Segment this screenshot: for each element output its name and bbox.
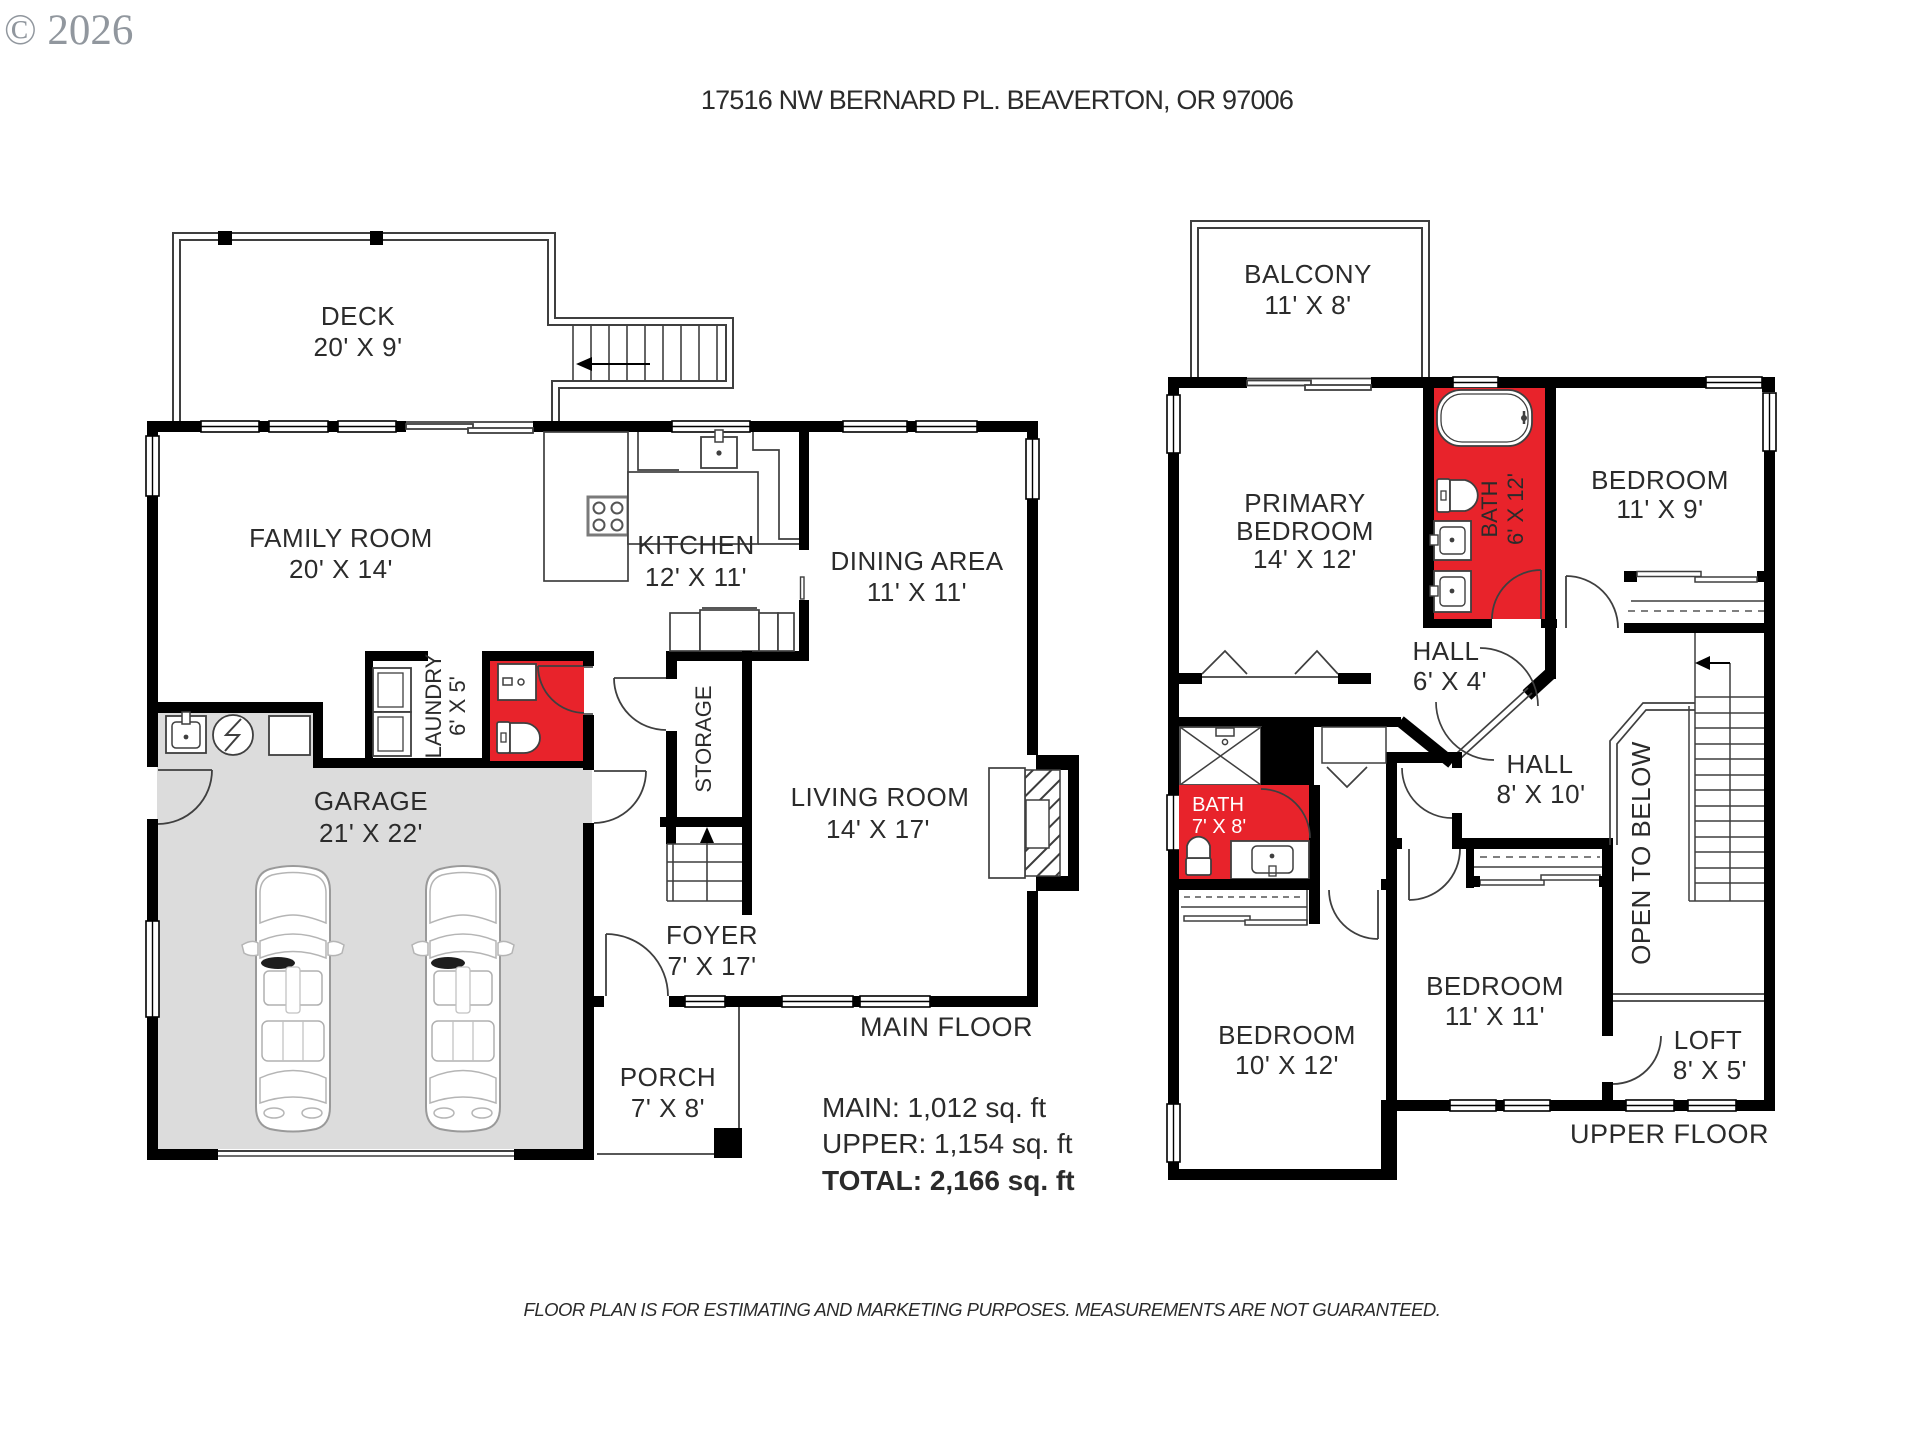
svg-text:FLOOR PLAN IS FOR ESTIMATING A: FLOOR PLAN IS FOR ESTIMATING AND MARKETI… bbox=[524, 1299, 1441, 1320]
svg-text:BATH: BATH bbox=[1192, 794, 1244, 816]
svg-text:HALL: HALL bbox=[1412, 636, 1479, 666]
svg-text:HALL: HALL bbox=[1506, 749, 1573, 779]
svg-text:17516 NW BERNARD PL. BEAVERTON: 17516 NW BERNARD PL. BEAVERTON, OR 97006 bbox=[701, 85, 1293, 115]
svg-text:7' X 17': 7' X 17' bbox=[667, 951, 756, 981]
svg-text:10' X 12': 10' X 12' bbox=[1235, 1050, 1339, 1080]
svg-text:LOFT: LOFT bbox=[1674, 1025, 1742, 1055]
svg-text:PRIMARY: PRIMARY bbox=[1244, 488, 1366, 518]
svg-text:GARAGE: GARAGE bbox=[314, 786, 428, 816]
svg-text:LIVING ROOM: LIVING ROOM bbox=[791, 782, 970, 812]
svg-text:8' X 5': 8' X 5' bbox=[1673, 1055, 1747, 1085]
svg-text:OPEN TO BELOW: OPEN TO BELOW bbox=[1626, 741, 1656, 965]
svg-text:UPPER FLOOR: UPPER FLOOR bbox=[1570, 1119, 1769, 1149]
svg-text:21' X 22': 21' X 22' bbox=[319, 818, 423, 848]
svg-text:LAUNDRY: LAUNDRY bbox=[421, 653, 446, 758]
svg-text:STORAGE: STORAGE bbox=[691, 685, 716, 792]
svg-text:11' X 11': 11' X 11' bbox=[1445, 1001, 1545, 1031]
svg-text:PORCH: PORCH bbox=[620, 1062, 716, 1092]
svg-text:6' X 4': 6' X 4' bbox=[1413, 666, 1487, 696]
svg-text:8' X 10': 8' X 10' bbox=[1496, 779, 1585, 809]
svg-text:20' X 14': 20' X 14' bbox=[289, 554, 393, 584]
svg-text:14' X 12': 14' X 12' bbox=[1253, 544, 1357, 574]
svg-text:BEDROOM: BEDROOM bbox=[1591, 465, 1729, 495]
svg-text:MAIN: 1,012 sq. ft: MAIN: 1,012 sq. ft bbox=[822, 1092, 1046, 1123]
svg-text:11' X 11': 11' X 11' bbox=[867, 577, 967, 607]
svg-text:12' X 11': 12' X 11' bbox=[645, 562, 747, 592]
svg-text:FAMILY ROOM: FAMILY ROOM bbox=[249, 523, 433, 553]
svg-text:DINING AREA: DINING AREA bbox=[830, 546, 1003, 576]
svg-text:UPPER: 1,154 sq. ft: UPPER: 1,154 sq. ft bbox=[822, 1128, 1073, 1159]
svg-text:TOTAL: 2,166 sq. ft: TOTAL: 2,166 sq. ft bbox=[822, 1165, 1075, 1196]
svg-text:MAIN FLOOR: MAIN FLOOR bbox=[860, 1012, 1033, 1042]
svg-text:© 2026: © 2026 bbox=[4, 7, 133, 54]
svg-text:11' X 9': 11' X 9' bbox=[1616, 494, 1703, 524]
svg-text:BATH: BATH bbox=[1477, 480, 1502, 537]
svg-text:6' X 5': 6' X 5' bbox=[445, 676, 470, 736]
svg-text:14' X 17': 14' X 17' bbox=[826, 814, 930, 844]
svg-text:BALCONY: BALCONY bbox=[1244, 259, 1372, 289]
svg-text:KITCHEN: KITCHEN bbox=[637, 530, 755, 560]
svg-text:6' X 12': 6' X 12' bbox=[1503, 473, 1528, 545]
svg-text:20' X 9': 20' X 9' bbox=[313, 332, 402, 362]
svg-text:7' X 8': 7' X 8' bbox=[631, 1093, 705, 1123]
svg-text:BEDROOM: BEDROOM bbox=[1426, 971, 1564, 1001]
svg-text:7' X 8': 7' X 8' bbox=[1192, 816, 1246, 838]
svg-text:DECK: DECK bbox=[321, 301, 395, 331]
svg-text:BEDROOM: BEDROOM bbox=[1236, 516, 1374, 546]
svg-text:BEDROOM: BEDROOM bbox=[1218, 1020, 1356, 1050]
svg-text:FOYER: FOYER bbox=[666, 920, 758, 950]
svg-text:11' X 8': 11' X 8' bbox=[1264, 290, 1351, 320]
